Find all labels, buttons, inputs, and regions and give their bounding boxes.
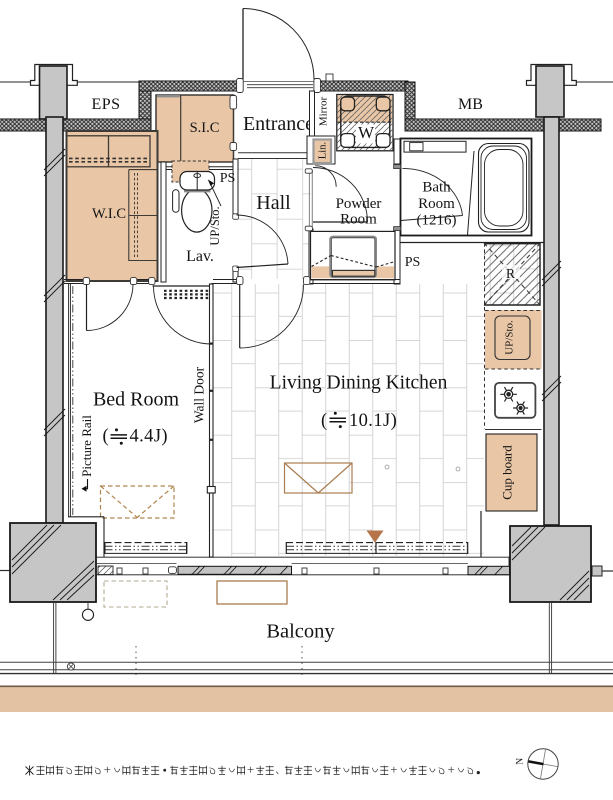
svg-text:UP/Sto.: UP/Sto. bbox=[504, 320, 516, 355]
svg-text:Bath: Bath bbox=[422, 180, 451, 196]
svg-text:W: W bbox=[358, 123, 375, 142]
svg-text:Lav.: Lav. bbox=[186, 248, 214, 265]
svg-text:MB: MB bbox=[458, 96, 483, 113]
svg-text:Entrance: Entrance bbox=[243, 113, 314, 135]
svg-text:Lin.: Lin. bbox=[317, 142, 328, 159]
svg-text:Room: Room bbox=[418, 196, 455, 212]
svg-text:Living Dining Kitchen: Living Dining Kitchen bbox=[270, 373, 448, 394]
svg-text:4.4J): 4.4J) bbox=[130, 427, 169, 447]
svg-text:Hall: Hall bbox=[256, 192, 291, 214]
svg-text:Wall Door: Wall Door bbox=[192, 366, 207, 423]
svg-text:S.I.C: S.I.C bbox=[190, 120, 220, 136]
svg-text:(1216): (1216) bbox=[417, 213, 457, 229]
svg-text:Cup board: Cup board bbox=[500, 445, 515, 500]
svg-text:Mirror: Mirror bbox=[318, 97, 330, 127]
svg-text:R: R bbox=[506, 266, 515, 281]
svg-text:N: N bbox=[516, 758, 526, 765]
svg-text:(: ( bbox=[321, 411, 327, 431]
svg-text:UP/Sto.: UP/Sto. bbox=[208, 206, 222, 245]
svg-text:Bed Room: Bed Room bbox=[93, 389, 180, 411]
svg-text:Picture Rail: Picture Rail bbox=[79, 415, 94, 477]
svg-text:W.I.C: W.I.C bbox=[92, 206, 126, 222]
svg-text:Room: Room bbox=[340, 212, 377, 228]
svg-text:10.1J): 10.1J) bbox=[349, 411, 397, 431]
svg-text:(: ( bbox=[103, 427, 109, 447]
svg-text:Powder: Powder bbox=[336, 196, 382, 212]
svg-text:PS: PS bbox=[405, 255, 421, 270]
svg-text:Balcony: Balcony bbox=[266, 621, 335, 643]
svg-text:EPS: EPS bbox=[91, 96, 120, 113]
svg-text:PS: PS bbox=[220, 171, 236, 186]
